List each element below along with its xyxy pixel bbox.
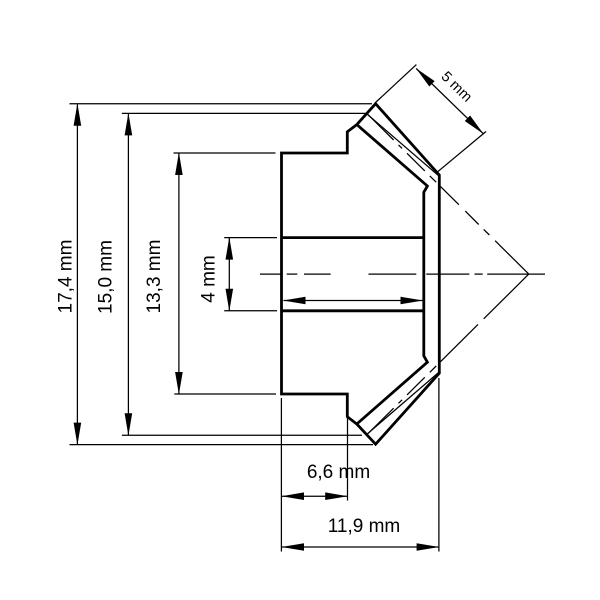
svg-text:11,9 mm: 11,9 mm <box>328 516 401 537</box>
svg-text:17,4 mm: 17,4 mm <box>56 240 77 314</box>
svg-text:6,6 mm: 6,6 mm <box>307 462 370 483</box>
svg-text:4 mm: 4 mm <box>199 255 220 303</box>
svg-text:15,0 mm: 15,0 mm <box>96 240 117 314</box>
svg-text:13,3 mm: 13,3 mm <box>144 240 165 314</box>
